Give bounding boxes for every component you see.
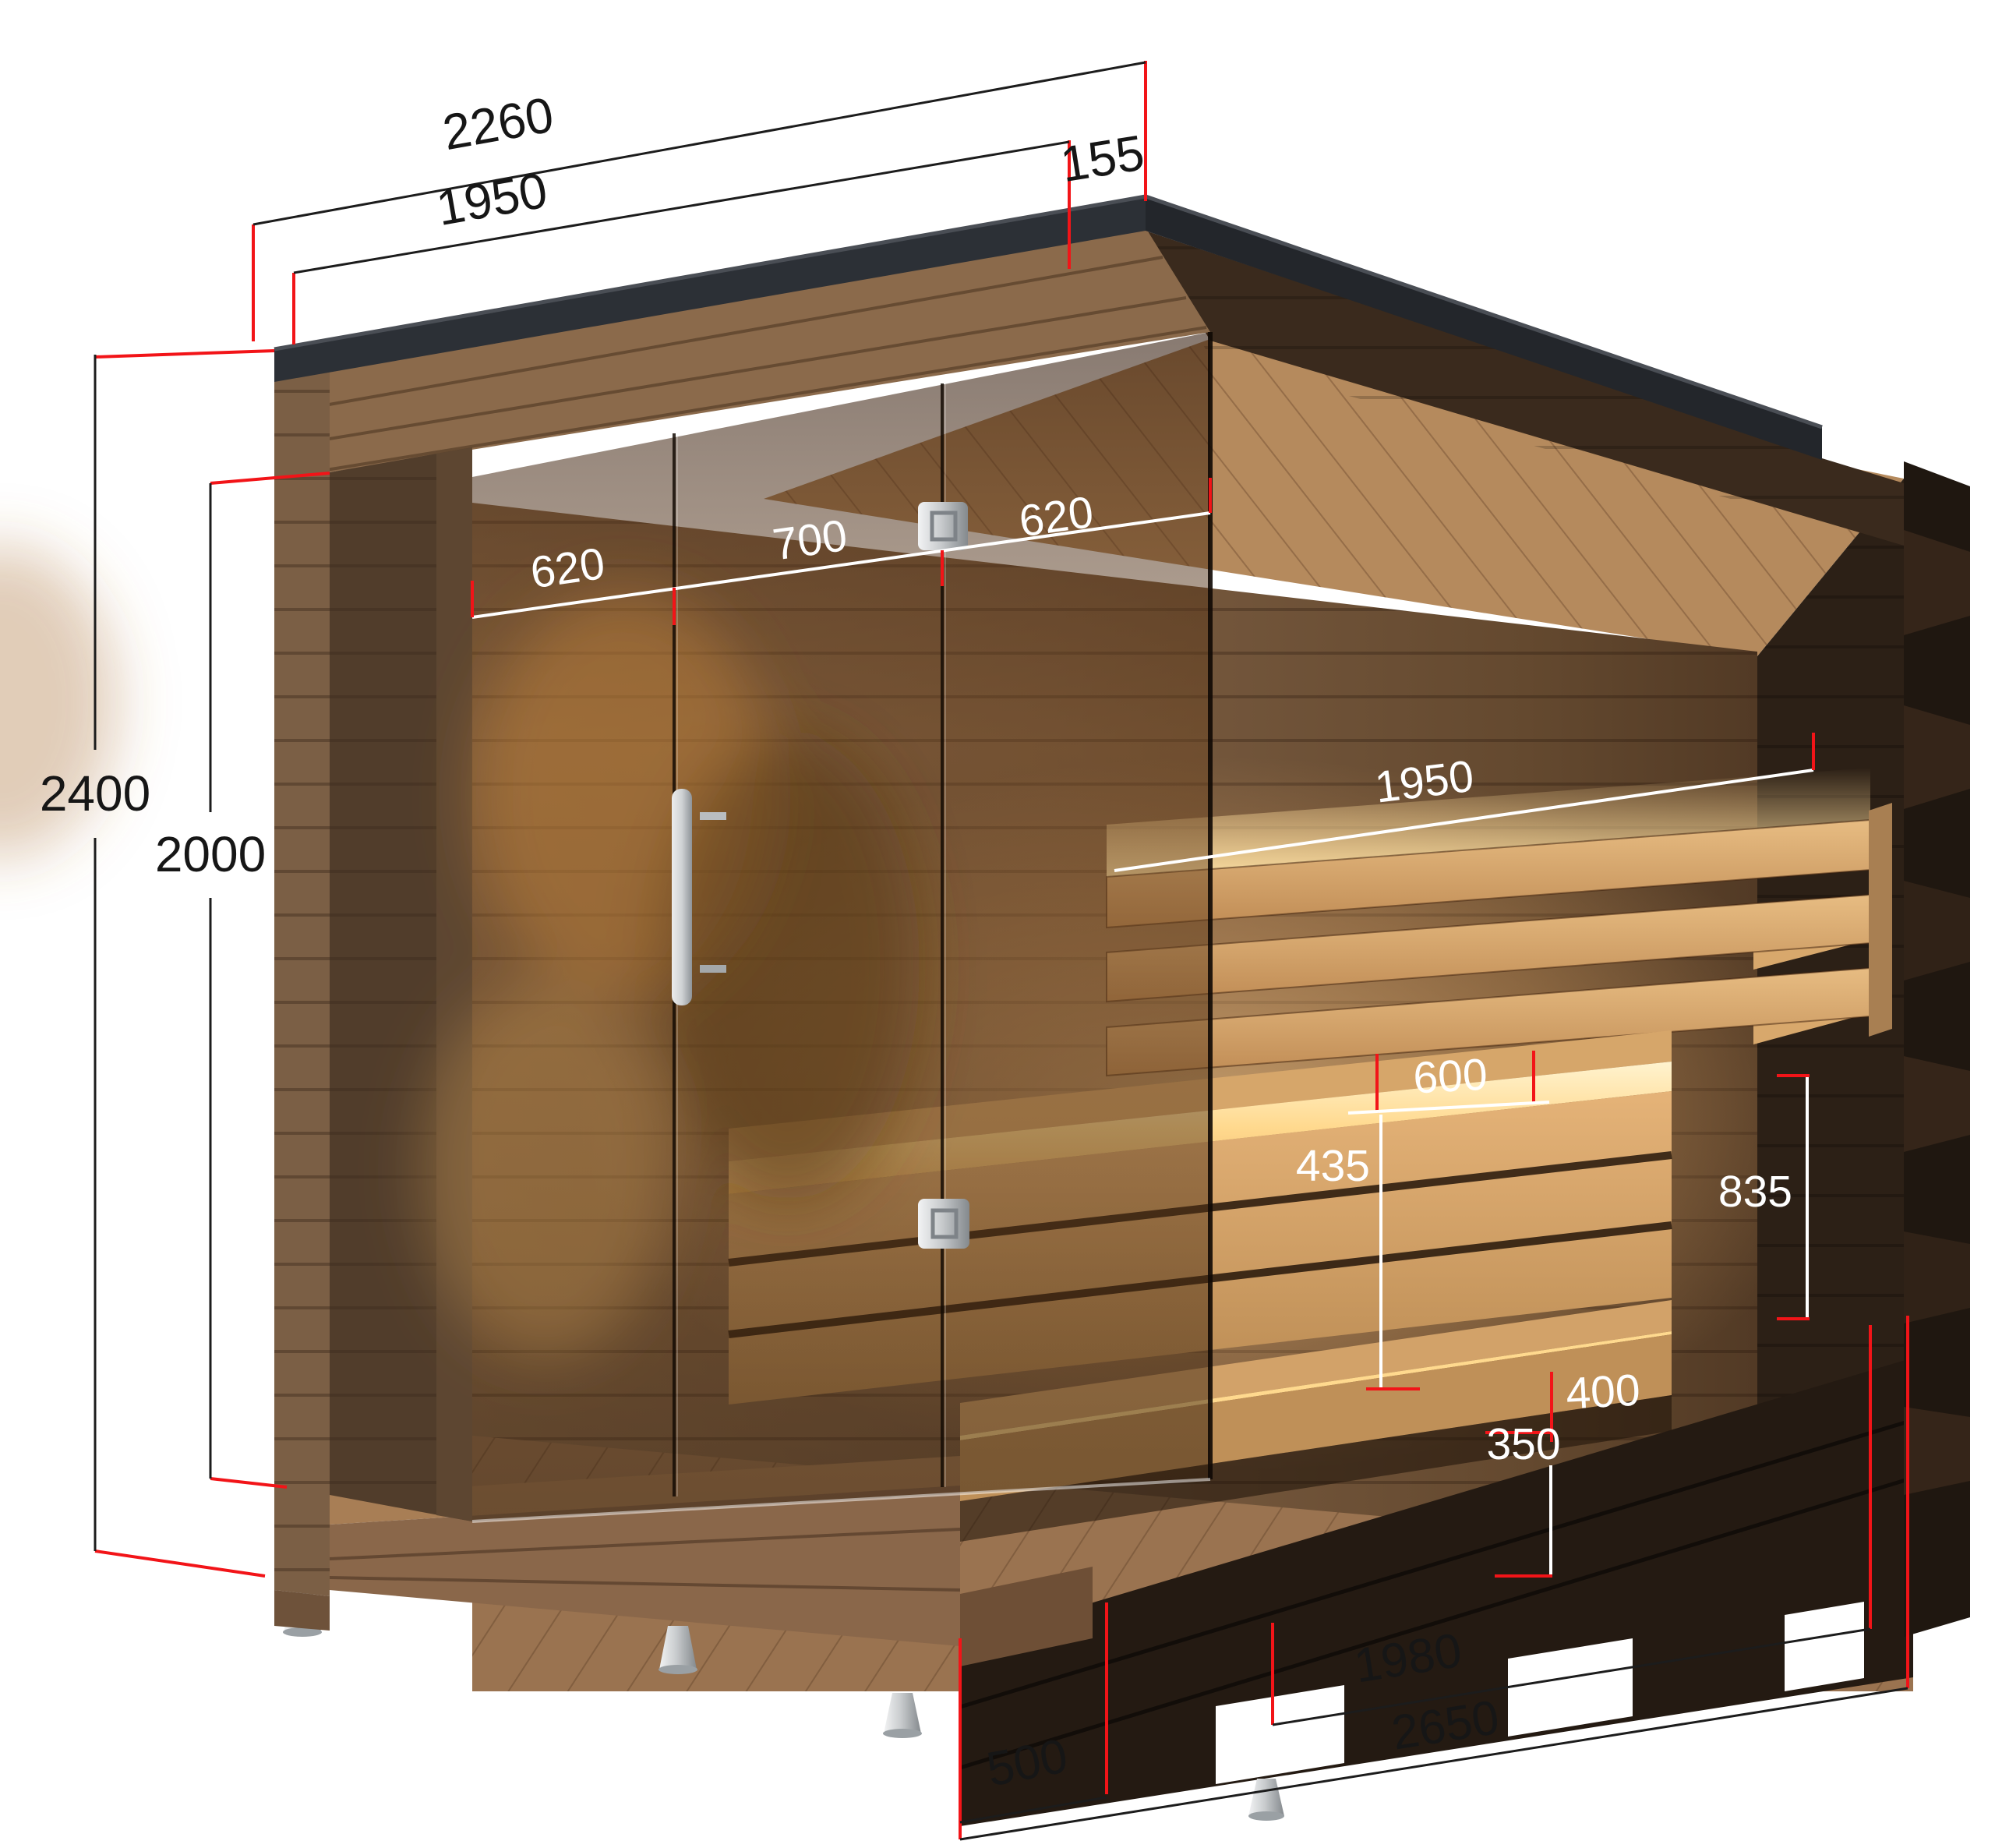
dim-label-bench-height: 835 [1718,1167,1792,1217]
door-jamb [436,447,472,1521]
sauna-dimension-diagram: 2260 1950 155 2400 2000 620 700 620 1950… [0,0,1995,1848]
left-wall-footer [274,1590,330,1631]
base-notch [1785,1602,1864,1691]
backrest-support [1869,803,1892,1037]
left-wall-planks [274,369,330,1596]
dim-label-step-depth: 400 [1565,1366,1641,1419]
dim-label-step-height: 350 [1486,1419,1560,1469]
corner-log-ends [1904,461,1970,1637]
dim-label-height-total: 2400 [40,765,150,822]
square-lock-plate-icon [918,1199,969,1249]
dim-label-glass-right: 620 [1016,487,1096,547]
dim-label-height-opening: 2000 [155,826,266,882]
dim-label-glass-left: 620 [528,539,608,599]
dim-label-bench-depth: 600 [1412,1050,1488,1104]
square-lock-plate-icon [918,502,968,550]
dim-label-backrest-drop: 435 [1296,1141,1370,1191]
dim-label-door-width: 700 [770,511,850,571]
diagram-canvas: 2260 1950 155 2400 2000 620 700 620 1950… [0,0,1995,1848]
